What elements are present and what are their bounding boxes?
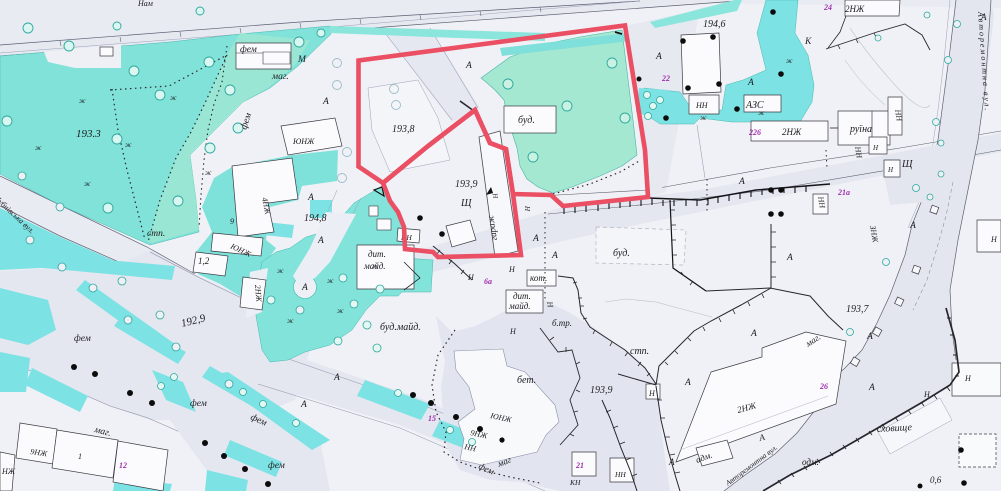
svg-text:буд.: буд. — [613, 248, 630, 259]
svg-text:ж: ж — [372, 262, 379, 270]
svg-text:дит.: дит. — [513, 291, 531, 301]
svg-text:ж: ж — [758, 109, 765, 117]
svg-text:майд.: майд. — [508, 301, 531, 311]
svg-text:К: К — [804, 37, 812, 47]
svg-text:А: А — [868, 383, 875, 393]
svg-text:ж: ж — [84, 180, 91, 188]
svg-text:буд.: буд. — [518, 115, 535, 126]
svg-text:Нам: Нам — [137, 0, 153, 8]
svg-text:Н: Н — [887, 166, 894, 174]
svg-text:ж: ж — [35, 144, 42, 152]
svg-text:ж: ж — [700, 114, 707, 122]
svg-text:194,6: 194,6 — [703, 19, 726, 30]
svg-text:бет.: бет. — [517, 375, 536, 386]
svg-text:2НЖ: 2НЖ — [782, 127, 802, 137]
svg-text:маг.: маг. — [271, 72, 289, 82]
svg-text:1,2: 1,2 — [198, 256, 210, 266]
svg-text:ж: ж — [205, 169, 212, 177]
svg-text:А: А — [747, 78, 754, 88]
svg-text:одм.: одм. — [802, 457, 819, 467]
svg-text:ж: ж — [170, 94, 177, 102]
svg-text:А: А — [684, 378, 691, 388]
svg-text:фем: фем — [268, 460, 285, 471]
svg-text:24: 24 — [823, 3, 832, 12]
svg-text:194,8: 194,8 — [304, 213, 327, 224]
svg-text:0,6: 0,6 — [930, 475, 942, 485]
svg-text:12: 12 — [119, 461, 127, 470]
svg-text:КН: КН — [569, 478, 581, 487]
svg-text:стп.: стп. — [630, 346, 649, 357]
svg-text:Щ: Щ — [901, 159, 913, 170]
svg-text:А: А — [465, 61, 472, 71]
svg-text:НН: НН — [695, 101, 709, 110]
svg-text:193,9: 193,9 — [590, 385, 613, 396]
svg-text:А: А — [786, 253, 793, 263]
svg-text:фем: фем — [240, 44, 257, 55]
svg-text:ж: ж — [277, 267, 284, 275]
svg-text:ж: ж — [287, 317, 294, 325]
svg-text:ж: ж — [327, 277, 334, 285]
svg-text:А: А — [655, 52, 662, 62]
svg-text:А: А — [980, 12, 987, 22]
svg-text:Н: Н — [872, 144, 879, 152]
svg-text:ж: ж — [125, 141, 132, 149]
svg-text:фем: фем — [74, 333, 91, 344]
svg-text:9: 9 — [230, 217, 234, 226]
svg-text:А: А — [551, 251, 558, 261]
svg-text:2НЖ: 2НЖ — [253, 284, 264, 302]
svg-text:А: А — [909, 221, 916, 231]
svg-text:буд.майд.: буд.майд. — [380, 322, 421, 333]
svg-text:193,8: 193,8 — [392, 124, 415, 135]
svg-text:А: А — [307, 193, 314, 203]
svg-text:сховище: сховище — [877, 422, 913, 435]
svg-text:кот.: кот. — [530, 273, 547, 283]
svg-text:А: А — [322, 97, 329, 107]
svg-text:193.3: 193.3 — [76, 128, 101, 140]
svg-text:А: А — [300, 400, 307, 410]
svg-text:руїна: руїна — [849, 124, 872, 135]
svg-text:Н: Н — [523, 205, 531, 212]
svg-text:Щ: Щ — [460, 198, 472, 209]
svg-text:21а: 21а — [837, 188, 850, 197]
svg-text:дит.: дит. — [368, 249, 386, 259]
svg-text:А: А — [750, 329, 757, 339]
svg-text:НН: НН — [614, 470, 626, 479]
svg-text:6а: 6а — [484, 277, 492, 286]
svg-text:А: А — [317, 236, 324, 246]
svg-text:А: А — [301, 283, 308, 293]
svg-text:ж: ж — [337, 307, 344, 315]
svg-text:21: 21 — [575, 461, 584, 470]
svg-text:22: 22 — [661, 74, 670, 83]
svg-text:А: А — [866, 332, 873, 342]
svg-text:2НЖ: 2НЖ — [845, 4, 865, 14]
svg-text:15: 15 — [428, 414, 436, 423]
svg-text:1: 1 — [78, 452, 82, 461]
svg-text:ж: ж — [786, 57, 793, 65]
svg-text:226: 226 — [748, 128, 761, 137]
svg-text:193,9: 193,9 — [455, 179, 478, 190]
svg-text:ЮНЖ: ЮНЖ — [292, 137, 315, 146]
svg-text:26: 26 — [819, 382, 828, 391]
svg-text:М: М — [297, 55, 307, 65]
svg-text:НЖ: НЖ — [1, 467, 16, 476]
svg-text:А: А — [668, 457, 675, 467]
svg-text:фем: фем — [190, 398, 207, 409]
svg-text:А: А — [333, 373, 340, 383]
svg-text:А: А — [738, 177, 745, 187]
svg-text:б.тр.: б.тр. — [552, 318, 572, 328]
svg-text:стп.: стп. — [147, 229, 165, 239]
svg-text:А: А — [532, 234, 539, 244]
svg-text:ж: ж — [79, 97, 86, 105]
svg-text:193,7: 193,7 — [846, 304, 870, 315]
